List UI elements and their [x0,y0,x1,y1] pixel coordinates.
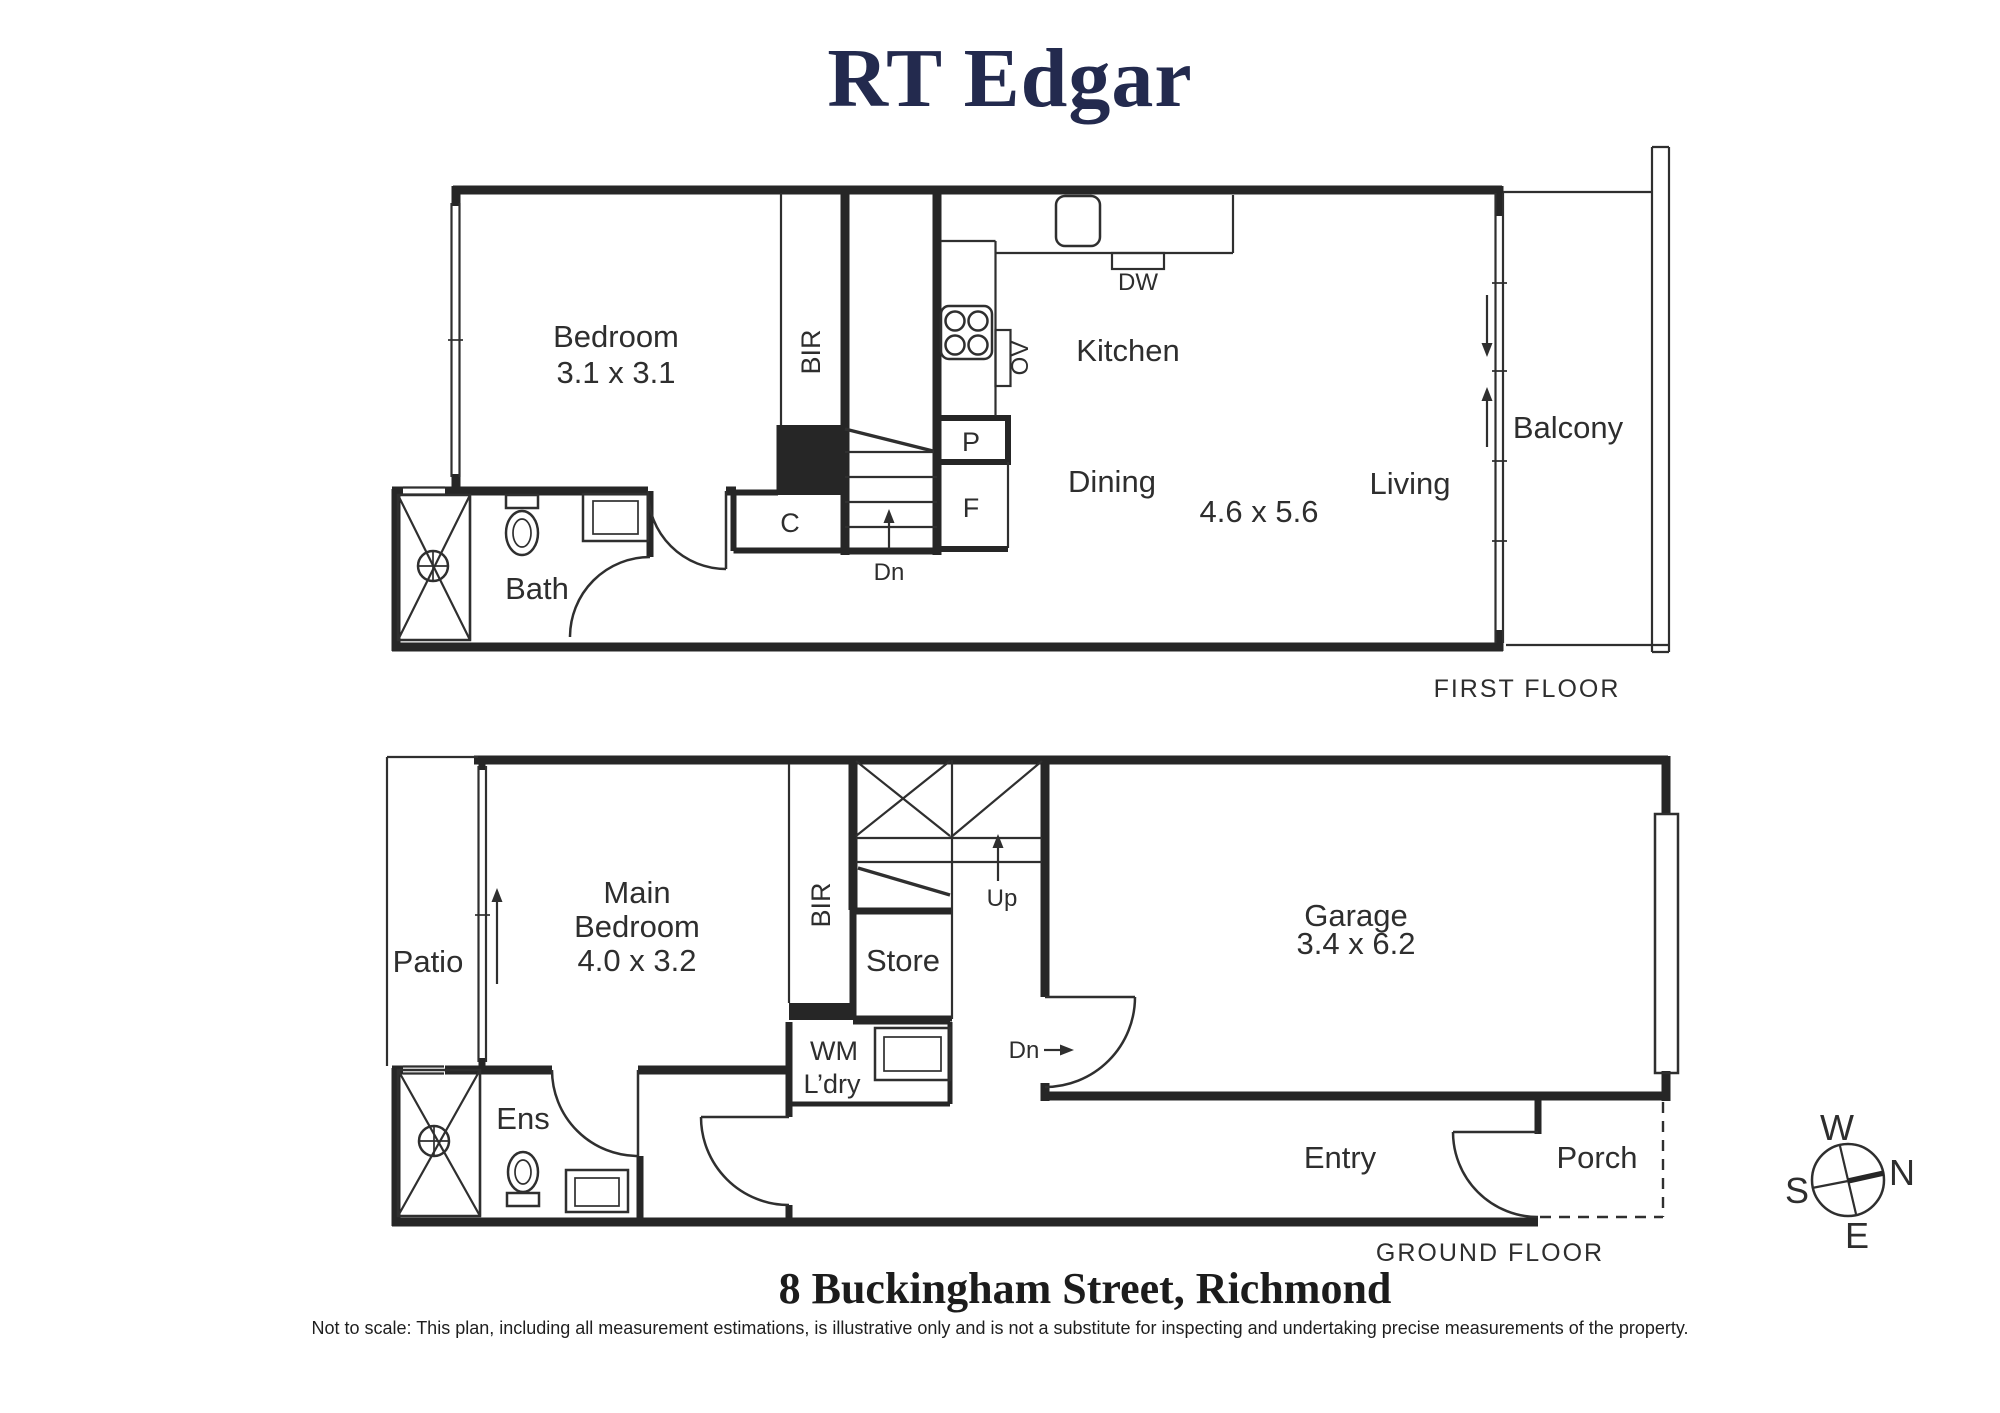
ground-floor-plan: Patio Main Bedroom 4.0 x 3.2 BIR Store U… [387,756,1678,1267]
compass-rose: W N S E [1785,1107,1915,1256]
washing-machine [875,1028,950,1080]
label-bir-first: BIR [796,329,826,374]
label-main: Main [603,875,670,910]
label-cupboard: C [780,508,800,538]
dishwasher [1112,253,1164,269]
main-bedroom-slider [475,766,503,1062]
label-balcony: Balcony [1513,410,1624,445]
stairs-down-arrow [884,509,895,523]
label-garage-dims: 3.4 x 6.2 [1297,926,1416,961]
bedroom-door [648,491,726,569]
floorplan-canvas: RT Edgar [0,0,2000,1413]
label-down-ground: Dn [1009,1037,1040,1064]
label-living-dims: 4.6 x 5.6 [1200,494,1319,529]
label-bedroom-dims: 3.1 x 3.1 [557,355,676,390]
compass-east: E [1845,1215,1869,1256]
label-up: Up [987,885,1018,912]
ensuite-toilet [507,1152,539,1206]
compass-south: S [1785,1170,1809,1211]
cooktop [941,306,992,359]
label-pantry: P [962,427,980,457]
label-bir-ground: BIR [806,882,836,927]
label-entry: Entry [1304,1140,1377,1175]
brand-title: RT Edgar [827,32,1192,125]
hall-door [701,1117,789,1205]
balcony-sliding-doors [1482,193,1508,643]
first-floor-plan: Bedroom 3.1 x 3.1 BIR Kitchen Dining 4.6… [392,147,1669,703]
label-living: Living [1370,466,1451,501]
bath-window [403,488,445,495]
ground-floor-caption: GROUND FLOOR [1376,1239,1604,1267]
garage-internal-door [1045,997,1135,1087]
ensuite-door [552,1070,638,1156]
compass-north: N [1889,1152,1915,1193]
label-main-bedroom-dims: 4.0 x 3.2 [578,943,697,978]
label-main-bedroom: Bedroom [574,909,700,944]
label-oven: OV [1007,341,1034,376]
wall-block-ground [789,1003,853,1020]
label-bedroom: Bedroom [553,319,679,354]
balcony-outline [1503,147,1669,652]
wall-block [777,425,846,495]
down-arrow-ground [1044,1045,1074,1056]
bedroom-window [448,203,463,477]
bath-door [570,557,650,637]
compass-west: W [1820,1107,1854,1148]
label-laundry: L’dry [803,1069,861,1099]
patio-outline [387,757,478,1066]
property-address: 8 Buckingham Street, Richmond [779,1264,1392,1313]
label-down-first: Dn [874,559,905,586]
label-wm: WM [810,1036,858,1066]
floorplan-page: RT Edgar [0,0,2000,1413]
label-patio: Patio [393,944,464,979]
label-bath: Bath [505,571,569,606]
first-floor-stairs [845,429,937,549]
label-ensuite: Ens [496,1101,549,1136]
ground-floor-walls [392,756,1668,1226]
stairs-up-arrow [993,834,1004,848]
ensuite-vanity [566,1170,628,1212]
label-store: Store [866,943,940,978]
first-floor-caption: FIRST FLOOR [1434,675,1621,703]
bath-vanity [583,494,648,541]
garage-door [1655,814,1678,1073]
bath-shower [398,495,470,640]
bath-toilet [506,495,538,555]
label-dining: Dining [1068,464,1156,499]
label-fridge: F [963,493,980,523]
disclaimer-text: Not to scale: This plan, including all m… [311,1318,1688,1338]
front-door [1453,1132,1538,1217]
compass-north-needle [1848,1173,1884,1181]
label-dishwasher: DW [1118,269,1158,296]
sink [1056,196,1100,246]
ensuite-shower [398,1070,480,1216]
label-kitchen: Kitchen [1076,333,1179,368]
label-porch: Porch [1557,1140,1638,1175]
